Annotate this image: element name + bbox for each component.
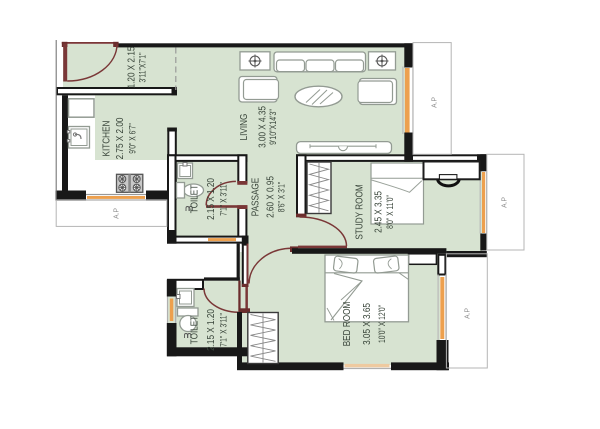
svg-text:8'0" X 11'0": 8'0" X 11'0" — [385, 195, 395, 229]
svg-text:3'11"X7'1": 3'11"X7'1" — [137, 52, 147, 82]
svg-text:7'1" X 3'11": 7'1" X 3'11" — [218, 313, 228, 347]
svg-text:8'6" X 3'1": 8'6" X 3'1" — [277, 182, 287, 213]
svg-text:9'10"X14'3": 9'10"X14'3" — [268, 109, 278, 145]
svg-text:A.P: A.P — [112, 208, 120, 219]
svg-text:TOILET: TOILET — [189, 315, 200, 344]
svg-text:1.20 X 2.15: 1.20 X 2.15 — [126, 47, 137, 89]
svg-text:7'1" X 3'11": 7'1" X 3'11" — [218, 182, 228, 216]
svg-text:A.P: A.P — [430, 97, 438, 108]
svg-text:BED ROOM: BED ROOM — [341, 302, 352, 347]
svg-text:STUDY ROOM: STUDY ROOM — [354, 184, 365, 239]
svg-text:2.15 X 1.20: 2.15 X 1.20 — [205, 178, 216, 220]
svg-text:9'0" X 6'7": 9'0" X 6'7" — [127, 123, 137, 154]
svg-text:2.15 X 1.20: 2.15 X 1.20 — [205, 309, 216, 351]
svg-text:KITCHEN: KITCHEN — [101, 121, 112, 157]
svg-text:A.P: A.P — [500, 197, 508, 208]
svg-text:2.75 X 2.00: 2.75 X 2.00 — [114, 118, 125, 160]
svg-text:A.P: A.P — [463, 308, 471, 319]
svg-text:3.05 X 3.65: 3.05 X 3.65 — [361, 303, 372, 345]
svg-text:3.00 X 4.35: 3.00 X 4.35 — [257, 106, 268, 148]
svg-text:PASSAGE: PASSAGE — [250, 178, 261, 217]
svg-text:LIVING: LIVING — [238, 114, 249, 141]
svg-text:TOILET: TOILET — [189, 184, 200, 213]
svg-text:10'0" X 12'0": 10'0" X 12'0" — [377, 305, 387, 343]
svg-text:2.45 X 3.35: 2.45 X 3.35 — [373, 191, 384, 233]
svg-text:2.60 X 0.95: 2.60 X 0.95 — [265, 176, 276, 218]
